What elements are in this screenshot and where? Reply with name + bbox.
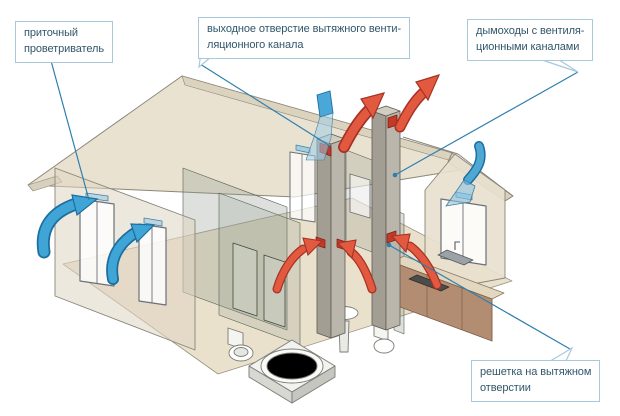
callout-exhaust-grille: решетка на вытяжном отверстии (471, 360, 600, 402)
callout-dot-grille (387, 243, 392, 248)
ventilation-diagram: приточный проветриватель выходное отверс… (0, 0, 620, 416)
exhaust-arrow-chimney-2 (400, 75, 439, 127)
chimney-1 (317, 134, 345, 338)
callout-dot-chimneys (393, 173, 398, 178)
callout-text-line: решетка на вытяжном (480, 365, 591, 381)
middle-window (350, 174, 370, 218)
callout-text-line: приточный (24, 26, 104, 42)
callout-text-line: дымоходы с вентиля- (476, 24, 584, 40)
callout-supply-ventilator: приточный проветриватель (15, 21, 113, 63)
callout-text-line: выходное отверстие вытяжного венти- (207, 22, 401, 38)
callout-exhaust-duct-outlet: выходное отверстие вытяжного венти- ляци… (198, 17, 410, 59)
house (28, 76, 513, 403)
callout-text-line: проветриватель (24, 42, 104, 58)
callout-text-line: ционными каналами (476, 40, 584, 56)
callout-text-line: отверстии (480, 381, 591, 397)
chimney-2 (372, 106, 400, 330)
callout-text-line: ляционного канала (207, 38, 401, 54)
callout-chimneys-vent-channels: дымоходы с вентиля- ционными каналами (467, 19, 593, 61)
